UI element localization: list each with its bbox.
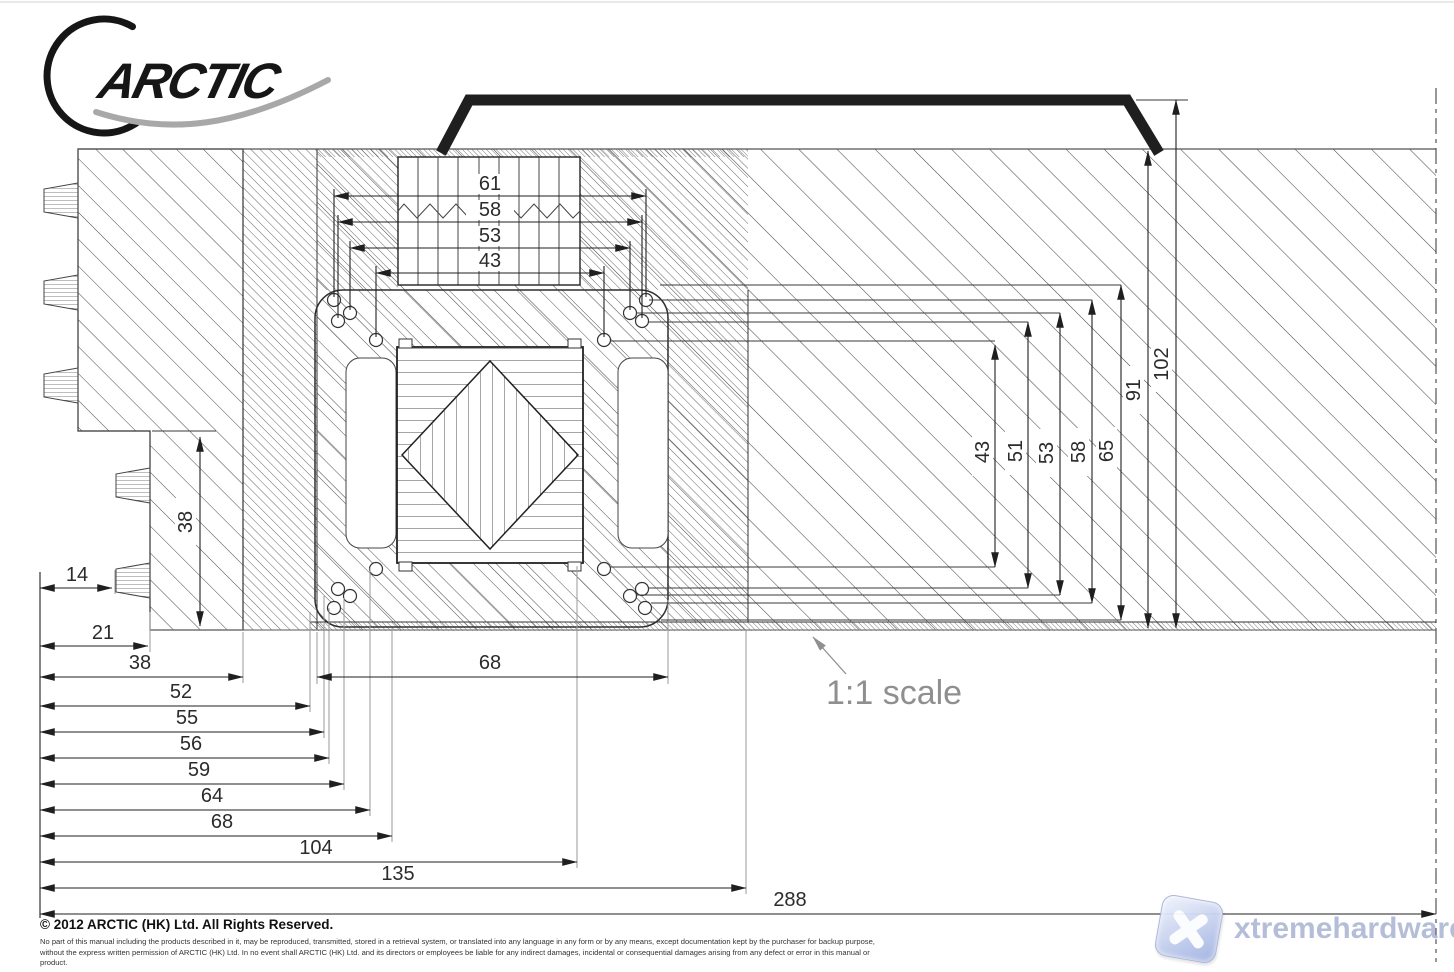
connector-tab bbox=[44, 368, 78, 403]
connector-tab bbox=[44, 183, 78, 218]
pcb-section bbox=[243, 149, 317, 630]
heatpipe-handle bbox=[441, 100, 1159, 153]
mounting-hole bbox=[370, 563, 383, 576]
dim-label-135: 135 bbox=[381, 863, 414, 885]
scale-note-label: 1:1 scale bbox=[826, 674, 962, 712]
dim-label-14: 14 bbox=[66, 564, 88, 586]
dim-label-104: 104 bbox=[299, 837, 332, 859]
watermark-site-text: xtremehardware.com bbox=[1234, 912, 1454, 946]
dim-label-left-38: 38 bbox=[175, 511, 197, 533]
dim-label-288: 288 bbox=[773, 889, 806, 911]
dense-band-left bbox=[317, 149, 398, 290]
dim-label-right-102: 102 bbox=[1151, 347, 1173, 380]
connector-tab bbox=[44, 275, 78, 310]
substrate-tab bbox=[399, 339, 412, 348]
mounting-hole bbox=[598, 563, 611, 576]
substrate-tab bbox=[399, 562, 412, 571]
dim-label-21: 21 bbox=[92, 622, 114, 644]
io-bracket-section bbox=[78, 149, 243, 630]
footer: © 2012 ARCTIC (HK) Ltd. All Rights Reser… bbox=[40, 917, 940, 969]
dim-label-right-65: 65 bbox=[1096, 440, 1118, 462]
dim-label-right-43: 43 bbox=[972, 441, 994, 463]
scale-note: 1:1 scale bbox=[813, 637, 962, 712]
mounting-hole bbox=[332, 583, 345, 596]
dim-label-mid-68: 68 bbox=[479, 652, 501, 674]
arctic-logo: ARCTIC bbox=[47, 19, 328, 133]
legal-text: No part of this manual including the pro… bbox=[40, 937, 896, 969]
dim-label-38: 38 bbox=[129, 652, 151, 674]
dim-label-64: 64 bbox=[201, 785, 223, 807]
scale-note-leader bbox=[813, 637, 846, 674]
top-dense-strip bbox=[317, 149, 748, 157]
dim-label-56: 56 bbox=[180, 733, 202, 755]
dim-label-top-58: 58 bbox=[479, 199, 501, 221]
dim-label-top-43: 43 bbox=[479, 250, 501, 272]
watermark: xtremehardware.com bbox=[1158, 898, 1454, 960]
substrate-tab bbox=[568, 562, 581, 571]
plate-pocket-left bbox=[346, 358, 396, 548]
dim-label-top-53: 53 bbox=[479, 225, 501, 247]
dim-label-right-58: 58 bbox=[1068, 441, 1090, 463]
dense-band-right bbox=[580, 149, 748, 290]
dim-label-52: 52 bbox=[170, 681, 192, 703]
manual-page: 61 58 53 43 43 51 53 58 65 91 102 38 68 … bbox=[0, 0, 1454, 972]
logo-wordmark: ARCTIC bbox=[91, 53, 287, 109]
connector-tab bbox=[116, 563, 150, 598]
connector-tab bbox=[116, 468, 150, 503]
dim-label-59: 59 bbox=[188, 759, 210, 781]
dim-label-right-91: 91 bbox=[1123, 379, 1145, 401]
cooler-body-section bbox=[44, 149, 1436, 631]
mounting-hole bbox=[344, 590, 357, 603]
copyright-text: © 2012 ARCTIC (HK) Ltd. All Rights Reser… bbox=[40, 917, 940, 932]
dim-label-right-51: 51 bbox=[1005, 440, 1027, 462]
dense-column-right bbox=[667, 290, 748, 622]
mounting-hole bbox=[636, 583, 649, 596]
dim-label-top-61: 61 bbox=[479, 173, 501, 195]
x-glyph-icon bbox=[1147, 887, 1231, 971]
technical-drawing: 61 58 53 43 43 51 53 58 65 91 102 38 68 … bbox=[0, 0, 1454, 972]
mounting-hole bbox=[624, 590, 637, 603]
substrate-tab bbox=[568, 339, 581, 348]
mounting-hole bbox=[639, 602, 652, 615]
dim-label-68: 68 bbox=[211, 811, 233, 833]
dim-label-right-53: 53 bbox=[1036, 442, 1058, 464]
plate-pocket-right bbox=[618, 358, 668, 548]
dim-label-55: 55 bbox=[176, 707, 198, 729]
xtremehardware-icon bbox=[1153, 893, 1225, 965]
